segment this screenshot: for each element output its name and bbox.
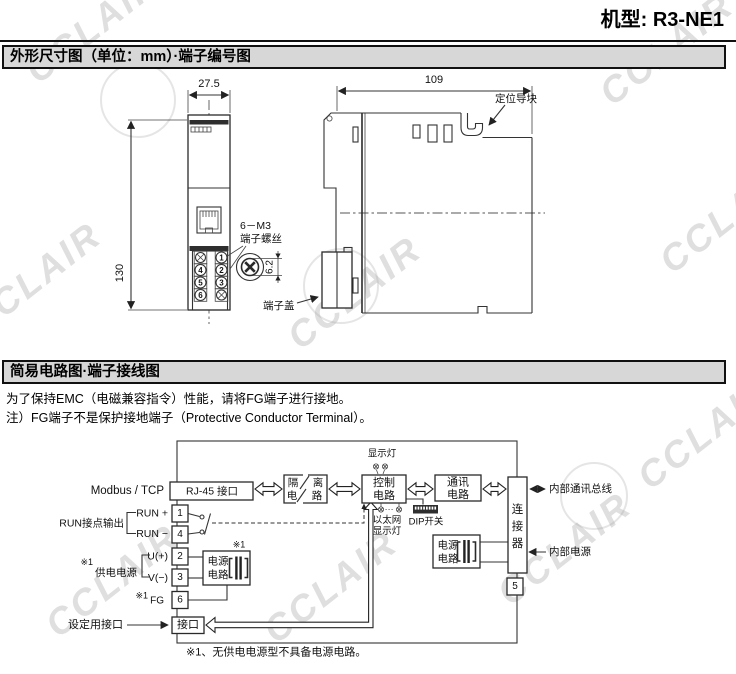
screw-icon — [327, 116, 332, 121]
dip-switch[interactable]: DIP开关 — [409, 505, 444, 528]
isolation-label-br: 路 — [312, 489, 323, 502]
power-label-1: 电源 — [208, 555, 229, 568]
control-label-1: 控制 — [373, 475, 395, 489]
isolation-label-bl: 电 — [287, 489, 298, 502]
modbus-label: Modbus / TCP — [91, 485, 165, 497]
screw-callout: 6－M3 端子螺丝 6.2 — [228, 220, 283, 283]
internal-power-label: 内部电源 — [549, 545, 591, 558]
guide-block-label: 定位导块 — [495, 92, 537, 105]
supply-ref-label: ※1 — [80, 557, 93, 567]
terminal-1: 1 — [177, 508, 183, 519]
connector-label: 连接器 — [512, 502, 524, 550]
dim-depth-value: 109 — [425, 74, 443, 86]
u-plus-label: U(+) — [147, 551, 168, 563]
terminal-4: 4 — [177, 529, 183, 540]
internal-power-callout: 内部电源 — [529, 545, 591, 558]
run-output-label: RUN接点输出 — [59, 517, 124, 530]
comm-label-1: 通讯 — [447, 476, 469, 489]
status-lamps: 显示灯 — [368, 449, 397, 475]
fg-label: FG — [150, 596, 164, 607]
terminal-6: 6 — [177, 595, 183, 606]
screw-detail-magnifier — [237, 254, 264, 281]
front-terminal-1: 1 — [219, 254, 224, 263]
terminal-cover-side — [322, 248, 352, 309]
front-terminal-5: 5 — [198, 279, 203, 288]
dim-screw-value: 6.2 — [265, 260, 276, 274]
internal-bus-label: 内部通讯总线 — [549, 482, 612, 495]
indicator-label: 显示灯 — [368, 449, 397, 460]
eth-label-2: 显示灯 — [373, 526, 402, 537]
emc-note: 为了保持EMC（电磁兼容指令）性能，请将FG端子进行接地。 — [6, 388, 351, 407]
terminal-band — [190, 246, 229, 251]
rj45-port-label: RJ-45 接口 — [186, 485, 238, 498]
footer-note: ※1、无供电电源型不具备电源电路。 — [186, 645, 366, 659]
comm-label-2: 电路 — [447, 488, 469, 501]
dip-label: DIP开关 — [409, 516, 444, 528]
dimension-drawing: 27.5 130 — [0, 70, 736, 360]
terminal-cover-label: 端子盖 — [263, 299, 295, 312]
guide-block-callout: 定位导块 — [489, 92, 537, 125]
power-label-1: 电源 — [438, 539, 459, 552]
screw-label-line1: 6－M3 — [240, 220, 271, 232]
supply-power-circuit: ※1 电源 电路 — [203, 540, 250, 586]
title-divider — [0, 40, 736, 42]
front-terminal-6: 6 — [198, 291, 203, 300]
front-terminal-2: 2 — [219, 266, 224, 275]
datasheet-page: CCLAIR CCLAIR CCLAIR CCLAIR CCLAIR CCLAI… — [0, 0, 736, 674]
fg-note: 注）FG端子不是保护接地端子（Protective Conductor Term… — [6, 407, 372, 426]
v-minus-label: V(−) — [148, 572, 168, 584]
power-label-2: 电路 — [438, 552, 459, 565]
run-minus-label: RUN − — [136, 528, 168, 540]
page-content: 机型: R3-NE1 外形尺寸图（单位：mm）·端子编号图 27.5 — [0, 0, 736, 674]
supply-label: 供电电源 — [95, 566, 137, 579]
eth-label-1: 以太网 — [373, 514, 402, 526]
vent-slots — [353, 125, 452, 293]
top-cap — [190, 120, 229, 125]
circuit-diagram: RJ-45 接口 Modbus / TCP 隔 电 离 路 控制 电路 通讯 电… — [0, 438, 736, 674]
internal-bus-callout: 内部通讯总线 — [530, 482, 612, 495]
fg-ref-label: ※1 — [135, 591, 148, 601]
screw-label-line2: 端子螺丝 — [240, 232, 282, 245]
run-plus-label: RUN + — [136, 508, 168, 520]
page-title: 机型: R3-NE1 — [601, 3, 724, 32]
positioning-guide-hook — [461, 113, 483, 136]
run-bracket — [127, 513, 136, 534]
terminal-3: 3 — [177, 572, 183, 583]
front-terminal-4: 4 — [198, 266, 203, 275]
internal-power-circuit: 电源 电路 — [433, 535, 480, 568]
dim-height-130: 130 — [114, 120, 187, 310]
control-label-2: 电路 — [373, 489, 395, 502]
setting-port-label: 设定用接口 — [68, 617, 123, 631]
section2-header: 简易电路图·端子接线图 — [2, 360, 726, 384]
front-terminal-3: 3 — [219, 279, 224, 288]
relay-contact — [200, 514, 211, 535]
relay-drive-dashed-line — [212, 504, 367, 524]
port-label: 接口 — [177, 618, 199, 631]
isolation-circuit-box: 隔 电 离 路 — [284, 475, 327, 503]
power-label-2: 电路 — [208, 568, 229, 581]
dim-width-value: 27.5 — [198, 78, 219, 90]
isolation-label-tl: 隔 — [288, 477, 299, 489]
isolation-label-tr: 离 — [313, 476, 324, 489]
ethernet-lamps: 以太网 显示灯 — [373, 503, 402, 537]
terminal-cover-callout: 端子盖 — [263, 297, 318, 312]
side-view — [322, 113, 545, 313]
terminal-5: 5 — [512, 581, 518, 592]
power-ref-label: ※1 — [233, 540, 246, 550]
dim-height-value: 130 — [114, 264, 126, 282]
front-view: 1 4 2 5 3 6 — [188, 100, 230, 324]
terminal-2: 2 — [177, 551, 183, 562]
section1-header: 外形尺寸图（单位：mm）·端子编号图 — [2, 45, 726, 69]
